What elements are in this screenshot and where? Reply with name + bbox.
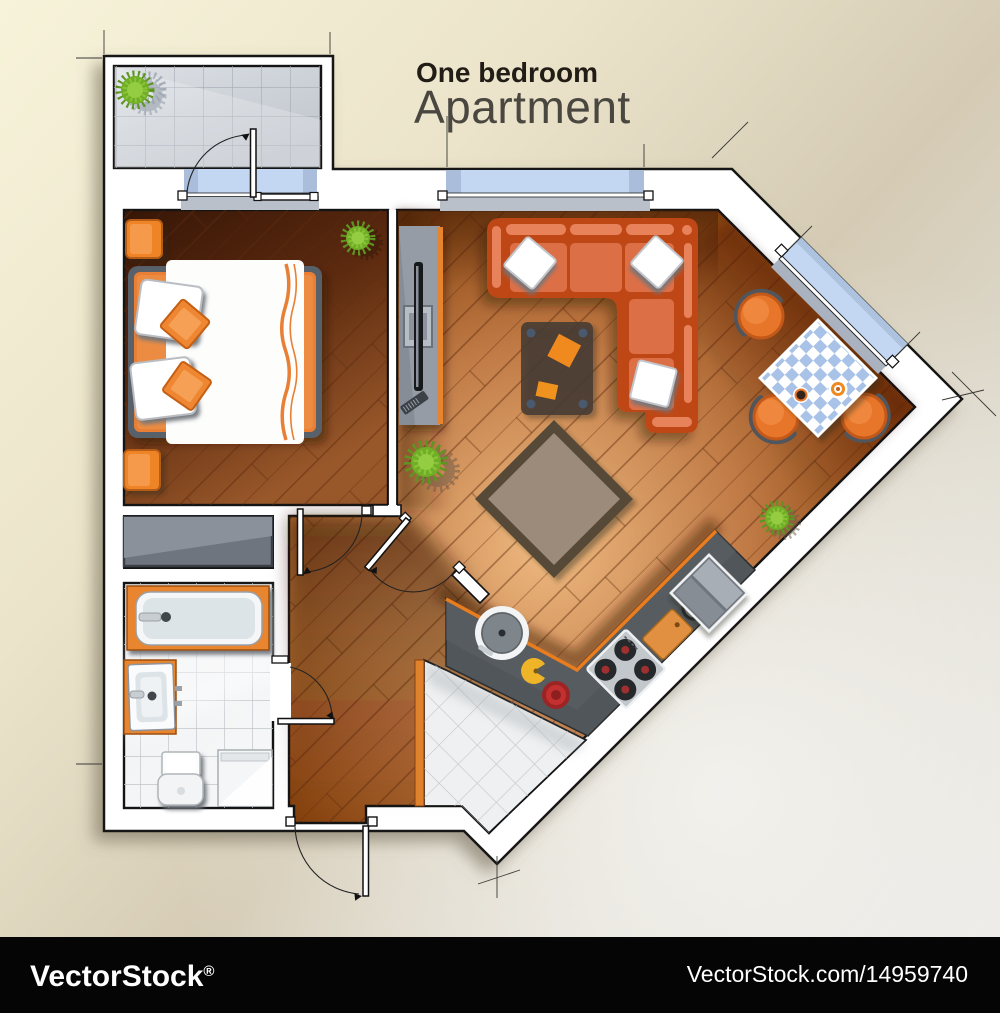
svg-text:VectorStock.com/14959740: VectorStock.com/14959740: [687, 961, 968, 987]
svg-text:VectorStock®: VectorStock®: [30, 960, 214, 993]
svg-text:Apartment: Apartment: [414, 81, 631, 133]
